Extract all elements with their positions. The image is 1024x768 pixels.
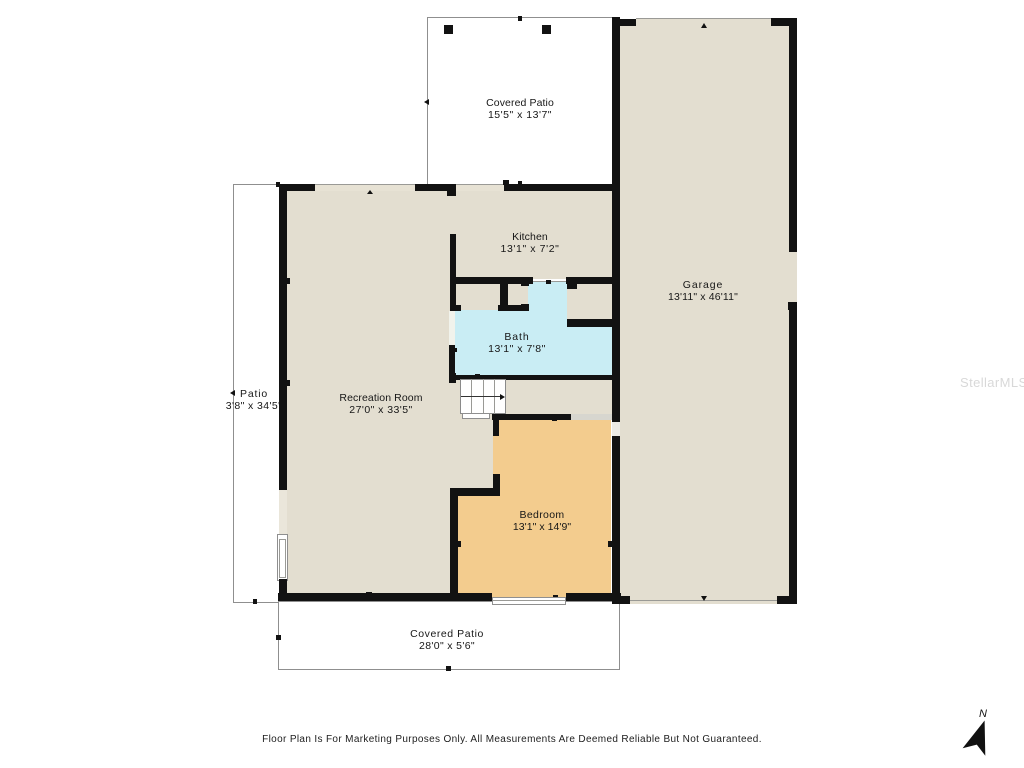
svg-text:N: N: [979, 708, 987, 720]
